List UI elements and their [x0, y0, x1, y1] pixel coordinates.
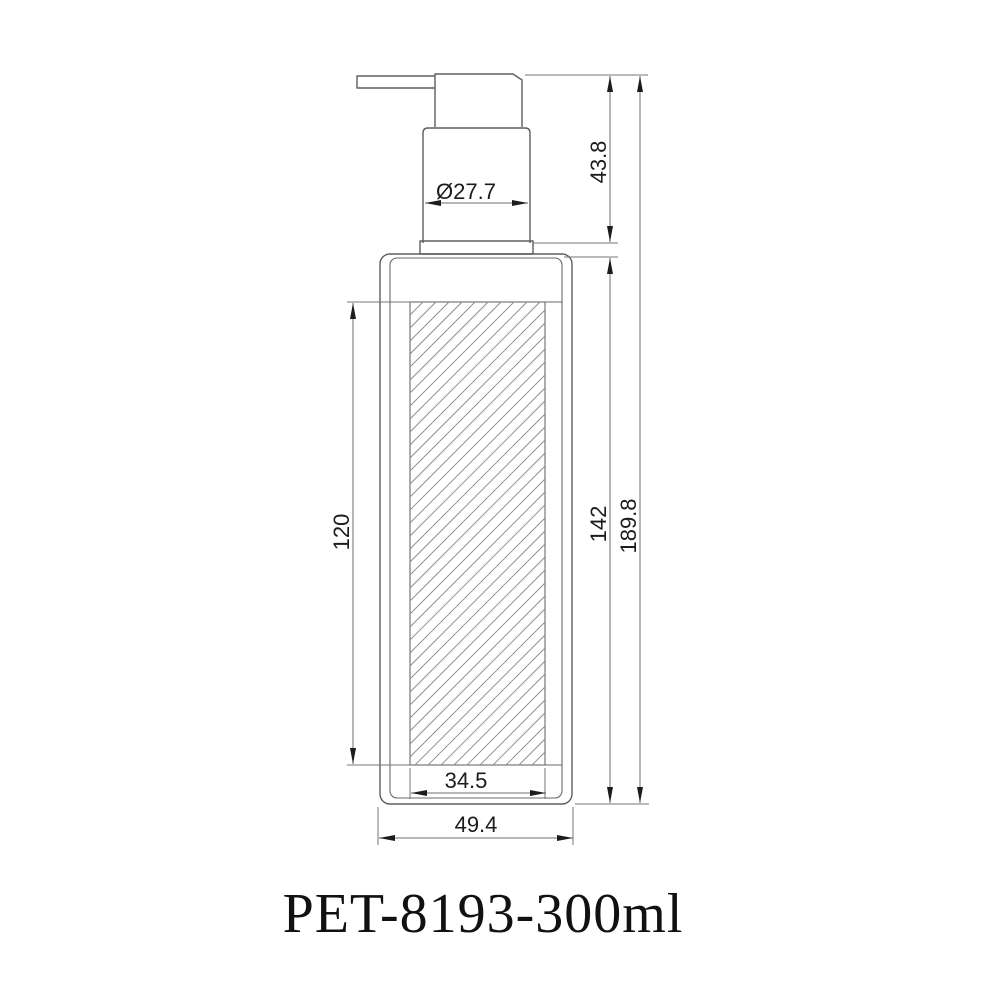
- dimension-value: 49.4: [455, 812, 498, 837]
- technical-drawing: Ø27.7 43.8 142 189.8: [0, 0, 1000, 1000]
- arrowhead-left-icon: [411, 790, 427, 796]
- hatch-line: [410, 302, 436, 328]
- hatch-line: [410, 336, 545, 471]
- hatch-line: [410, 302, 501, 393]
- dimension-value: 34.5: [445, 768, 488, 793]
- hatch-line: [410, 531, 545, 666]
- dimension-value: Ø27.7: [436, 179, 496, 204]
- hatch-line: [410, 557, 545, 692]
- hatch-line: [532, 752, 545, 765]
- hatch-line: [410, 466, 545, 601]
- hatch-line: [410, 388, 545, 523]
- hatch-line: [410, 302, 488, 380]
- hatch-line: [410, 427, 545, 562]
- hatch-line: [410, 310, 545, 445]
- drawing-sheet: Ø27.7 43.8 142 189.8: [0, 0, 1000, 1000]
- hatch-line: [410, 302, 462, 354]
- hatch-line: [410, 505, 545, 640]
- hatch-line: [410, 544, 545, 679]
- hatch-line: [428, 648, 545, 765]
- hatch-line: [410, 518, 545, 653]
- hatch-line: [410, 583, 545, 718]
- hatch-line: [480, 700, 545, 765]
- hatch-line: [519, 739, 545, 765]
- arrowhead-right-icon: [512, 200, 528, 206]
- hatch-line: [410, 570, 545, 705]
- drawing-title: PET-8193-300ml: [283, 883, 684, 945]
- pump-head: [357, 74, 533, 254]
- hatch-line: [410, 440, 545, 575]
- arrowhead-down-icon: [350, 748, 356, 764]
- pump-actuator: [435, 74, 522, 127]
- bottle-body: [380, 254, 572, 804]
- hatch-line: [441, 661, 545, 765]
- dimension-pump-diameter: Ø27.7: [425, 179, 528, 206]
- hatch-line: [410, 375, 545, 510]
- pump-nozzle: [357, 76, 435, 88]
- hatch-line: [506, 726, 545, 765]
- hatch-line: [410, 362, 545, 497]
- arrowhead-right-icon: [530, 790, 546, 796]
- arrowhead-up-icon: [607, 258, 613, 274]
- pump-collar-flange: [420, 241, 533, 254]
- hatch-line: [410, 596, 545, 731]
- hatch-line: [410, 302, 449, 341]
- hatch-line: [410, 302, 423, 315]
- arrowhead-down-icon: [637, 787, 643, 803]
- hatch-line: [410, 323, 545, 458]
- hatch-line: [410, 609, 545, 744]
- arrowhead-up-icon: [607, 76, 613, 92]
- hatch-line: [410, 302, 527, 419]
- hatch-line: [454, 674, 545, 765]
- dimension-label-height: 120: [329, 302, 410, 765]
- hatch-line: [410, 414, 545, 549]
- arrowhead-left-icon: [379, 835, 395, 841]
- hatch-line: [410, 479, 545, 614]
- label-panel: [410, 302, 545, 765]
- hatch-line: [410, 453, 545, 588]
- hatch-line: [410, 401, 545, 536]
- dimension-value: 43.8: [586, 141, 611, 184]
- arrowhead-up-icon: [637, 76, 643, 92]
- hatch-line: [410, 622, 545, 757]
- arrowhead-right-icon: [557, 835, 573, 841]
- hatch-line: [493, 713, 545, 765]
- hatch-line: [467, 687, 545, 765]
- dimension-body-width: 49.4: [378, 807, 573, 845]
- bottle-outer-outline: [380, 254, 572, 804]
- dimension-pump-height: 43.8: [525, 75, 648, 243]
- hatch-line: [410, 302, 475, 367]
- dimension-value: 189.8: [616, 498, 641, 553]
- hatch-line: [410, 349, 545, 484]
- arrowhead-down-icon: [607, 787, 613, 803]
- dimension-value: 142: [586, 506, 611, 543]
- arrowhead-down-icon: [607, 226, 613, 242]
- hatch-line: [410, 492, 545, 627]
- arrowhead-up-icon: [350, 303, 356, 319]
- dimension-total-height: 189.8: [575, 76, 649, 804]
- hatch-line: [410, 302, 514, 406]
- dimension-label-width: 34.5: [410, 768, 546, 799]
- dimension-value: 120: [329, 514, 354, 551]
- label-panel-hatching: [410, 302, 545, 765]
